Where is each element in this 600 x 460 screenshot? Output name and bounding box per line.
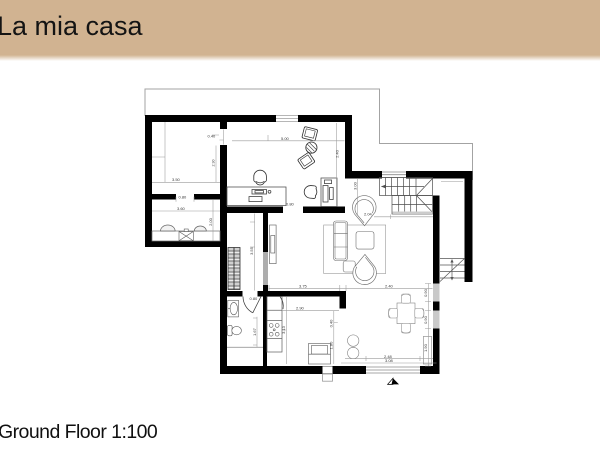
svg-text:2.04: 2.04 bbox=[364, 212, 373, 217]
svg-text:1.90: 1.90 bbox=[423, 343, 428, 352]
svg-text:3.75: 3.75 bbox=[299, 283, 308, 288]
svg-text:2.90: 2.90 bbox=[296, 305, 305, 310]
svg-text:1.80: 1.80 bbox=[329, 341, 334, 350]
svg-text:3.00: 3.00 bbox=[353, 181, 358, 190]
svg-text:3.50: 3.50 bbox=[172, 177, 181, 182]
svg-text:5.00: 5.00 bbox=[281, 136, 290, 141]
svg-text:3.13: 3.13 bbox=[281, 325, 286, 334]
svg-text:2.30: 2.30 bbox=[212, 160, 216, 167]
svg-text:0.80: 0.80 bbox=[179, 195, 188, 200]
svg-text:0.40: 0.40 bbox=[329, 319, 334, 328]
svg-text:3.55: 3.55 bbox=[249, 246, 254, 255]
svg-text:1.67: 1.67 bbox=[252, 327, 257, 336]
svg-text:3.08: 3.08 bbox=[385, 358, 394, 363]
svg-text:2.00: 2.00 bbox=[208, 217, 213, 226]
svg-text:0.90: 0.90 bbox=[423, 288, 428, 297]
svg-text:0.80: 0.80 bbox=[250, 296, 259, 301]
svg-text:3.60: 3.60 bbox=[177, 206, 186, 211]
svg-text:0.40: 0.40 bbox=[208, 134, 217, 139]
svg-text:0.90: 0.90 bbox=[423, 315, 428, 324]
svg-text:0.80: 0.80 bbox=[286, 202, 295, 207]
svg-text:2.40: 2.40 bbox=[335, 149, 340, 158]
svg-text:2.40: 2.40 bbox=[385, 283, 394, 288]
